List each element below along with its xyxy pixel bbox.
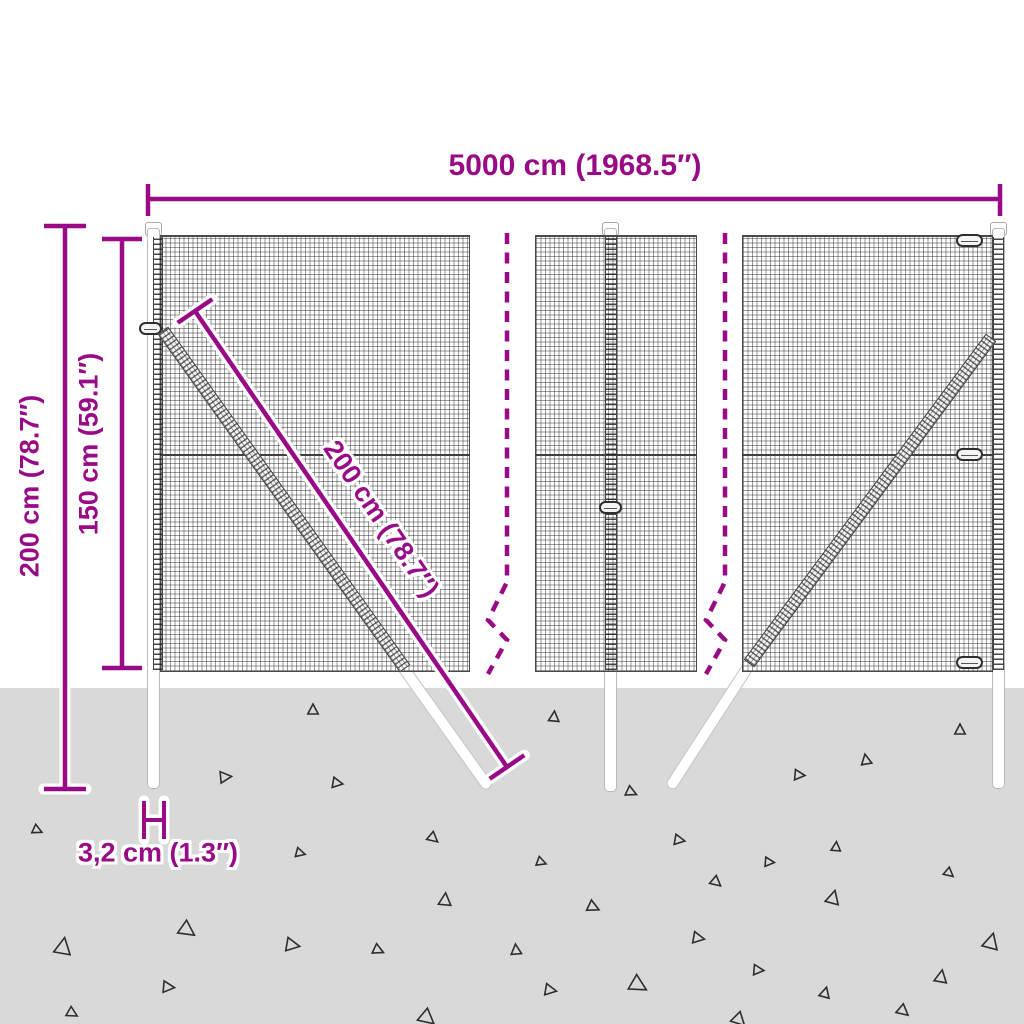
tension-wire-left xyxy=(160,454,470,456)
mesh-coil-right-post xyxy=(993,237,1004,670)
mesh-coil-left-post xyxy=(153,237,163,670)
clamp-middle-post xyxy=(599,501,622,514)
label-total-width: 5000 cm (1968.5″) xyxy=(449,149,702,183)
clamp-right-middle xyxy=(956,448,983,461)
label-post-width: 3,2 cm (1.3″) xyxy=(78,838,238,869)
break-dashed-line-left xyxy=(488,233,507,674)
clamp-right-top xyxy=(956,234,983,247)
clamp-right-bottom xyxy=(956,656,983,669)
dimension-total-width xyxy=(148,184,1000,216)
dimension-mesh-height xyxy=(102,239,142,668)
label-total-height: 200 cm (78.7″) xyxy=(15,395,46,578)
mesh-coil-middle-post xyxy=(605,237,617,670)
label-mesh-height: 150 cm (59.1″) xyxy=(74,353,105,536)
diagram-canvas: 5000 cm (1968.5″) 200 cm (78.7″) 150 cm … xyxy=(0,0,1024,1024)
break-dashed-line-right xyxy=(706,233,725,674)
